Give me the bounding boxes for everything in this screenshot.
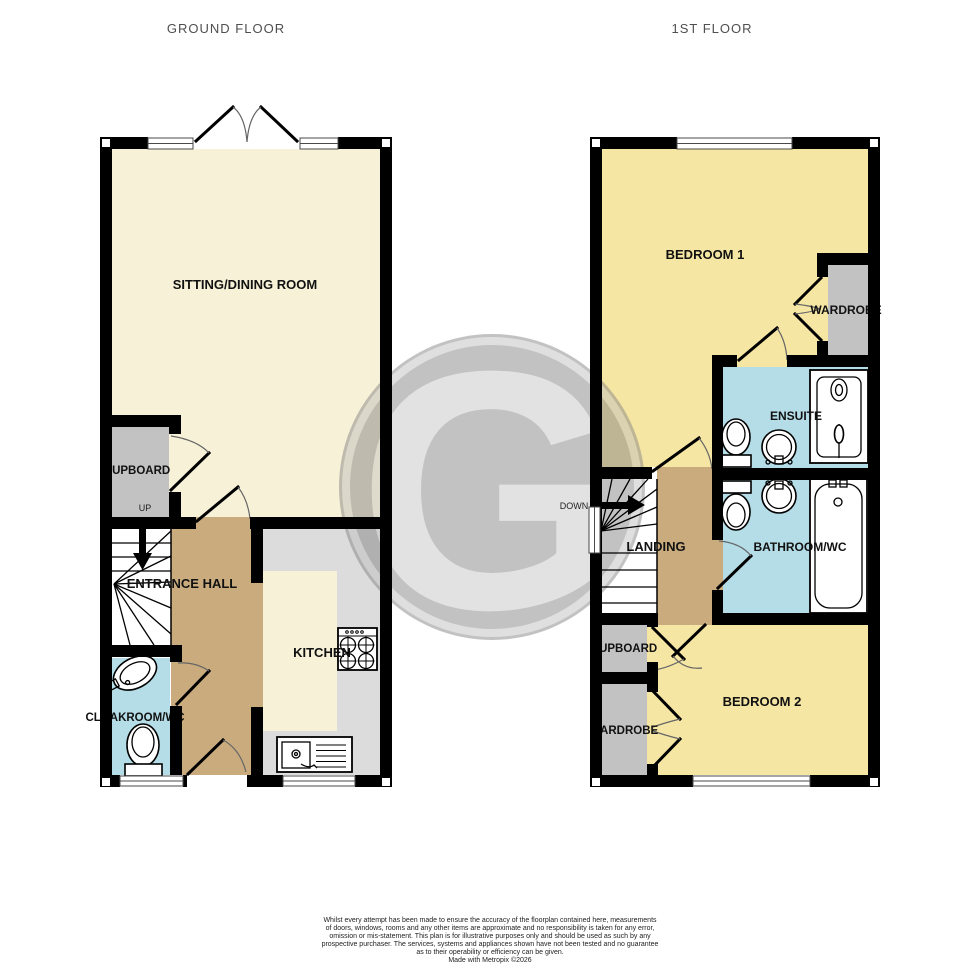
bathroom-sink-fixture (762, 479, 796, 513)
watermark-letter: G (358, 301, 622, 681)
first-floor-title: 1ST FLOOR (671, 21, 752, 36)
room-label-landing: LANDING (626, 539, 685, 554)
window (283, 776, 355, 786)
plan-titles: GROUND FLOOR 1ST FLOOR (167, 21, 753, 36)
ensuite-toilet-fixture (720, 419, 751, 467)
room-label-ensuite: ENSUITE (770, 409, 822, 423)
room-label-sitting: SITTING/DINING ROOM (173, 277, 317, 292)
bathroom-toilet-fixture (720, 481, 751, 530)
entrance-hall-floor-area (171, 529, 251, 775)
disclaimer: Whilst every attempt has been made to en… (322, 917, 659, 964)
disclaimer-line: as to their operability or efficiency ca… (416, 949, 563, 956)
disclaimer-line: prospective purchaser. The services, sys… (322, 941, 659, 948)
window (148, 138, 193, 149)
room-label-bedroom2: BEDROOM 2 (723, 694, 802, 709)
disclaimer-credit: Made with Metropix ©2026 (448, 956, 531, 964)
window (589, 507, 600, 553)
room-label-hall: ENTRANCE HALL (127, 576, 238, 591)
disclaimer-line: omission or mis-statement. This plan is … (329, 933, 651, 940)
room-label-bedroom1: BEDROOM 1 (666, 247, 745, 262)
kitchen-doorway-floor (251, 583, 263, 707)
window (300, 138, 338, 149)
floorplan-canvas: G (0, 0, 980, 965)
disclaimer-line: Whilst every attempt has been made to en… (323, 917, 657, 924)
stair-label-down: DOWN (560, 501, 589, 511)
window (120, 776, 183, 786)
window (693, 776, 810, 786)
stair-label-up: UP (139, 503, 152, 513)
disclaimer-line: of doors, windows, rooms and any other i… (326, 925, 655, 932)
kitchen-sink-fixture (277, 737, 352, 772)
ground-floor-title: GROUND FLOOR (167, 21, 285, 36)
floorplan-page: G (0, 0, 980, 965)
room-label-bathroom: BATHROOM/WC (753, 540, 846, 554)
bathroom-doorway-floor (712, 540, 723, 590)
room-label-kitchen: KITCHEN (293, 645, 351, 660)
french-doors (196, 107, 297, 142)
sitting-doorway-floor (196, 517, 250, 529)
ensuite-sink-fixture (762, 430, 796, 464)
window (677, 138, 792, 149)
room-label-gf-cupboard: CUPBOARD (104, 465, 170, 477)
